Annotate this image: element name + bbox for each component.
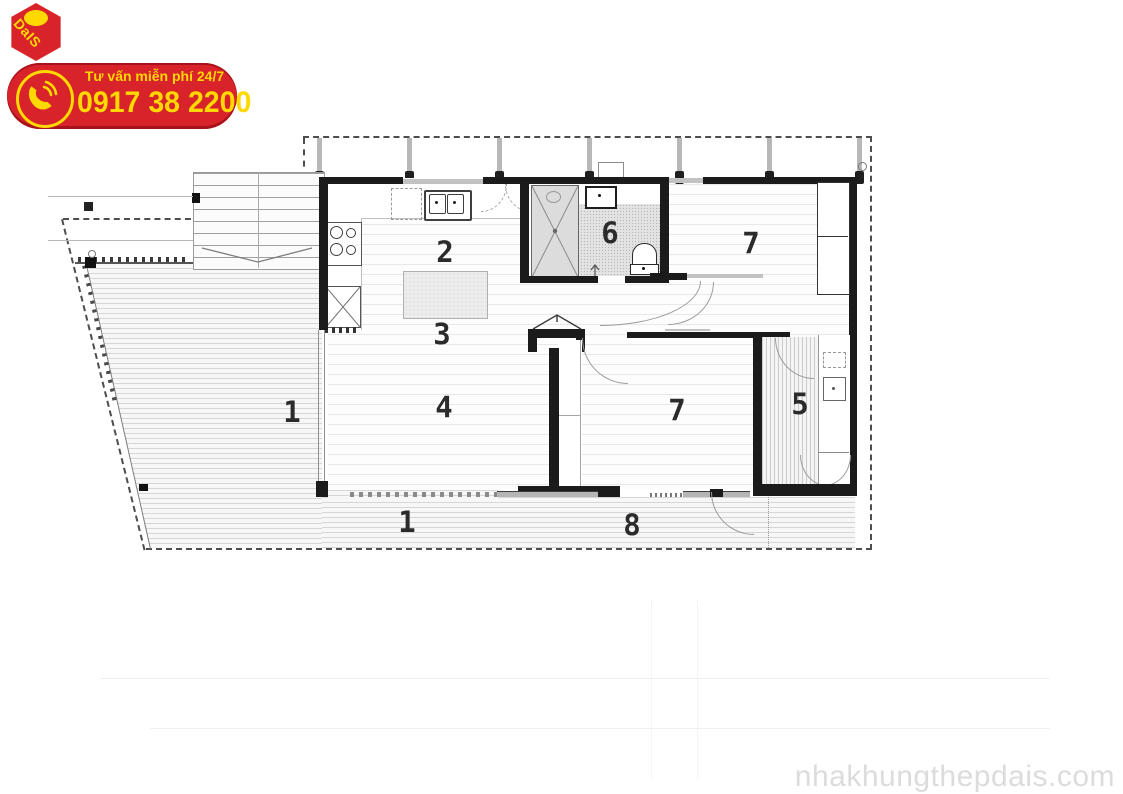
roof-outline-right [870,136,872,550]
fridge-dashed-outline [391,188,422,220]
room-label-kitchen: 2 [436,235,453,269]
fireplace-top-bar [528,329,585,338]
bedroom1-wardrobe [817,182,850,295]
shower-drain-oval [546,191,561,203]
toilet-flush-dot [642,267,645,270]
faint-vline-2 [697,600,698,780]
room-label-bedroom-2: 7 [668,393,685,427]
porch-dotted-edge [768,497,769,548]
cabinet-hatch-row [325,327,359,333]
room-label-utility: 5 [791,387,808,421]
hotline-label: Tư vấn miễn phí 24/7 [77,68,232,84]
stove-burner-2 [346,228,356,238]
roof-post-7 [857,138,862,184]
faint-line-1 [100,678,1050,679]
room-label-island: 3 [433,317,450,351]
chase-right-line [580,340,581,487]
stairs-direction-arrow [200,244,315,266]
hotline-number: 0917 38 2200 [77,86,224,120]
washing-machine-dot [832,387,835,390]
bedroom1-bottom-window [687,274,763,278]
bathroom-bottom-wall-left [520,276,598,283]
utility-dashed-box [823,352,846,368]
chase-divider [559,415,580,416]
kitchen-island [403,271,488,319]
bottom-wall-right [753,484,857,496]
top-window-kitchen [403,178,483,184]
room-label-bedroom-1: 7 [742,226,759,260]
screenshot-root: 1234567718 DaIS Tư vấn miễn phí 24/7 091… [0,0,1123,794]
pantry-x-mark [325,286,361,328]
corner-ring [858,162,867,171]
room-label-deck-left: 1 [283,395,300,429]
bathroom-left-wall [520,177,529,283]
kitchen-sink-bowl-left [429,194,446,214]
room-label-living: 4 [435,390,452,424]
bedroom2-top-window [665,329,710,331]
wardrobe-divider [817,236,848,237]
faint-line-2 [150,728,1050,729]
site-outline-bottom [146,548,872,550]
stove-burner-1 [330,226,343,239]
left-glass-wall-outer [318,330,319,487]
right-wall [849,177,857,490]
left-corner-post [316,481,328,497]
bedroom2-right-wall [753,333,762,488]
bedroom2-top-wall [627,332,757,338]
phone-icon [19,73,65,119]
stair-post [192,193,200,203]
chase-column [558,340,582,487]
room-label-deck-bottom: 1 [398,505,415,539]
deck-post [85,257,96,268]
fireplace-left-leg [528,338,537,352]
ramp-line-upper [48,196,193,197]
central-wall [549,348,559,487]
deck-post-cap [88,250,96,258]
watermark: nhakhungthepdais.com [795,760,1115,794]
left-glass-wall-inner [324,330,325,487]
bathroom-right-wall [660,177,669,283]
utility-cabinet-divider [818,452,849,453]
stove-burner-4 [346,245,356,255]
bathroom-sink-drain [598,194,601,197]
room-label-bathroom: 6 [601,216,618,250]
threshold-hatch [650,493,683,497]
ramp-post [84,202,93,211]
room-label-porch: 8 [623,508,640,542]
top-wall-a [319,177,403,184]
top-wall-b [483,177,668,184]
bedroom1-bottom-wall [650,273,687,280]
stove-burner-3 [330,243,343,256]
top-window-bedroom1 [668,178,703,183]
bathroom-sink [585,186,617,209]
sink-drain-left [435,201,438,204]
kitchen-sink-bowl-right [447,194,464,214]
left-wall-upper [319,177,328,330]
deck-edge-hatch [350,492,497,497]
deck-slant-post [139,484,148,491]
sink-drain-right [453,201,456,204]
ramp-line-lower [48,240,193,241]
sliding-door-left [497,491,598,497]
hotline-banner: Tư vấn miễn phí 24/7 0917 38 2200 [7,63,237,129]
phone-ring [16,70,74,128]
faint-vline-1 [651,600,652,780]
